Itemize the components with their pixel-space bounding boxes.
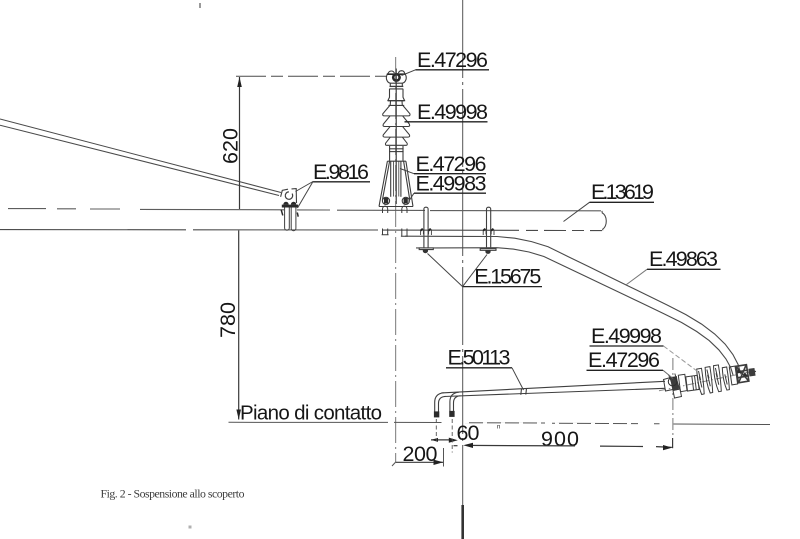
svg-text:E.50113: E.50113 [448, 346, 511, 370]
svg-text:E.49863: E.49863 [649, 247, 718, 271]
svg-text:620: 620 [218, 128, 242, 164]
svg-text:E.49998: E.49998 [591, 324, 662, 348]
svg-text:Piano di contatto: Piano di contatto [240, 402, 382, 425]
svg-text:E.47296: E.47296 [588, 348, 660, 372]
svg-text:E.15675: E.15675 [474, 265, 541, 289]
svg-text:E.47296: E.47296 [417, 48, 488, 72]
svg-text:900: 900 [541, 427, 579, 451]
svg-text:n: n [497, 425, 500, 431]
svg-text:E.49998: E.49998 [417, 100, 488, 124]
svg-text:Fig. 2 - Sospensione allo scop: Fig. 2 - Sospensione allo scoperto [101, 487, 245, 501]
svg-text:60: 60 [457, 421, 480, 445]
svg-text:E.49983: E.49983 [416, 172, 487, 196]
svg-text:780: 780 [216, 302, 240, 338]
svg-text:E.13619: E.13619 [591, 180, 654, 204]
svg-text:E.9816: E.9816 [313, 160, 369, 184]
